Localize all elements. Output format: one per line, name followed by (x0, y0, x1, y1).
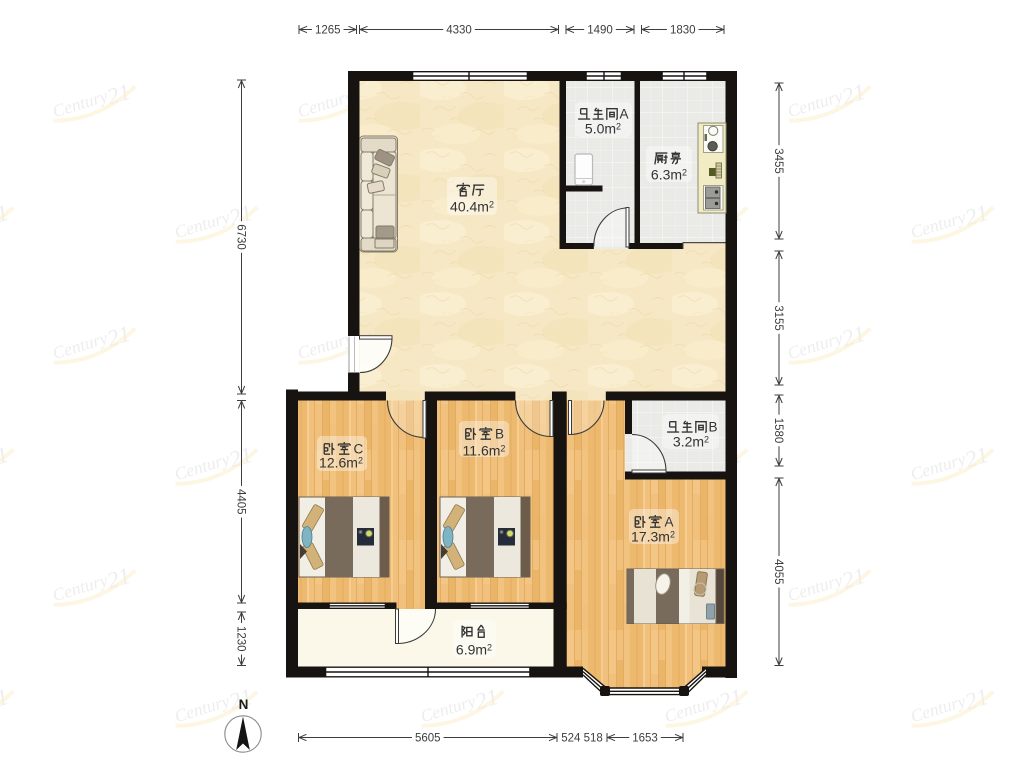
svg-text:N: N (239, 697, 249, 712)
svg-text:3.2m2: 3.2m2 (673, 434, 709, 450)
svg-text:4330: 4330 (446, 25, 472, 37)
svg-text:6.9m2: 6.9m2 (456, 642, 492, 658)
svg-text:4055: 4055 (772, 559, 784, 585)
svg-text:B: B (495, 427, 504, 442)
svg-text:B: B (709, 420, 718, 435)
svg-text:1653: 1653 (632, 733, 658, 745)
svg-text:A: A (665, 515, 674, 530)
svg-text:40.4m2: 40.4m2 (450, 199, 494, 215)
svg-text:4405: 4405 (234, 489, 246, 515)
svg-text:1830: 1830 (670, 25, 696, 37)
svg-text:5.0m2: 5.0m2 (585, 121, 621, 137)
svg-text:524 518: 524 518 (561, 733, 603, 745)
svg-text:5605: 5605 (415, 733, 441, 745)
svg-text:1490: 1490 (587, 25, 613, 37)
svg-text:6730: 6730 (234, 224, 246, 250)
svg-text:6.3m2: 6.3m2 (651, 167, 687, 183)
svg-text:17.3m2: 17.3m2 (631, 529, 675, 545)
svg-text:11.6m2: 11.6m2 (463, 443, 506, 459)
svg-text:A: A (620, 107, 629, 122)
svg-text:1580: 1580 (772, 418, 784, 444)
svg-text:3155: 3155 (772, 305, 784, 331)
svg-text:12.6m2: 12.6m2 (319, 455, 363, 471)
svg-text:1230: 1230 (234, 626, 246, 652)
svg-text:1265: 1265 (315, 25, 341, 37)
svg-text:3455: 3455 (772, 148, 784, 174)
